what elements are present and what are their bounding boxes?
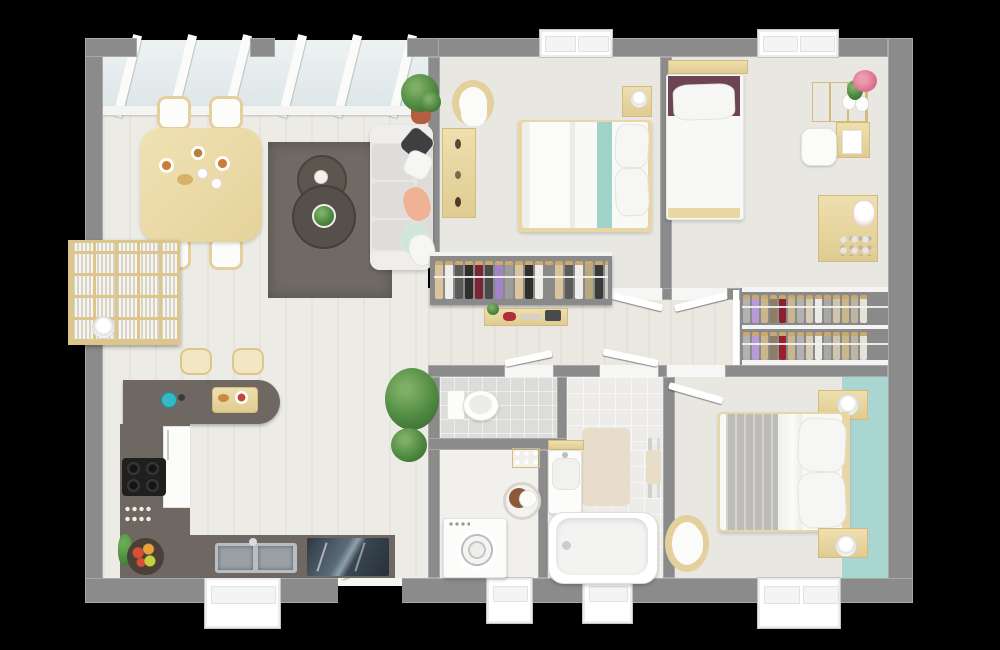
towel (646, 450, 661, 484)
shelf-item (455, 139, 461, 149)
fruit-bowl (127, 538, 164, 575)
washer-controls (448, 521, 470, 527)
closet-shelf-edge (742, 360, 888, 365)
clothing-item (833, 332, 840, 360)
entry-opening (338, 586, 402, 604)
clothing-item (475, 261, 483, 299)
plate (191, 146, 205, 160)
clothing-item (752, 332, 759, 360)
cup (197, 168, 208, 179)
clothing-item (806, 295, 813, 323)
clothing-item (779, 295, 786, 323)
clothing-item (770, 295, 777, 323)
console-bag (545, 310, 561, 321)
kettle (161, 392, 177, 408)
closet-shelf-edge (742, 325, 888, 329)
sink-basin (258, 546, 293, 570)
table-setting (153, 138, 253, 232)
window-bathroom-bottom (583, 578, 632, 623)
clothing-item (545, 261, 553, 299)
clothing-item (505, 261, 513, 299)
clothing-item (555, 261, 563, 299)
burner (146, 462, 159, 475)
faucet (249, 538, 257, 546)
doorway-bathroom (600, 365, 658, 377)
bread-basket (177, 174, 193, 185)
clothing-item (779, 332, 786, 360)
console-shoes (503, 312, 516, 321)
plate (215, 156, 230, 171)
clothing-item (485, 261, 493, 299)
wall-right (888, 38, 913, 603)
bed-bedroom1-pillow (614, 167, 650, 217)
window-pane (589, 586, 628, 602)
window-pane (763, 36, 798, 52)
burner (127, 479, 140, 492)
doorway-bedroom3 (667, 365, 725, 377)
window-pane (764, 586, 800, 604)
large-potted-plant-lower (391, 428, 427, 462)
spice-jars (124, 504, 152, 526)
window-pane (545, 36, 576, 52)
fridge-handle (167, 430, 169, 460)
closet-entry-edge (733, 290, 739, 365)
cup (211, 178, 222, 189)
clothing-item (761, 295, 768, 323)
clothing-item (815, 295, 822, 323)
window-bedroom1-top (540, 30, 612, 57)
wall-hall-bottom (658, 365, 667, 377)
clothing-item (465, 261, 473, 299)
clothing-item (842, 295, 849, 323)
clothing-item (535, 261, 543, 299)
bed-bedroom3-gray-throw (726, 414, 778, 530)
shelf-item (455, 171, 461, 179)
basket-towel-white (519, 490, 537, 508)
clothing-item (495, 261, 503, 299)
clothing-item (788, 332, 795, 360)
dining-chair (157, 96, 191, 130)
clothing-item (806, 332, 813, 360)
shelf-item (455, 197, 461, 207)
clothing-item (851, 332, 858, 360)
wall-top-pier (407, 38, 440, 57)
entry-threshold (338, 578, 402, 586)
clothing-item (824, 332, 831, 360)
desk-chair-bedroom2 (801, 128, 837, 166)
wall-hall-bottom (553, 365, 600, 377)
bathtub-drain (562, 541, 571, 550)
clothing-item (435, 261, 443, 299)
washer-lid (457, 530, 497, 570)
wall-hall-bottom-closet (725, 365, 888, 377)
closet-rail-bar (742, 343, 888, 345)
closet-rail-bottom (742, 331, 888, 361)
potted-plant-leaf (421, 92, 441, 112)
clothing-item (595, 261, 603, 299)
window-bedroom2-top (758, 30, 838, 57)
toy-set (838, 234, 874, 256)
tabletop-plant-bowl (312, 204, 336, 228)
clothing-item (605, 261, 608, 299)
closet-shelf-edge (742, 287, 888, 292)
bath-mat (582, 428, 630, 506)
glass-streak (354, 542, 365, 571)
bed-bedroom1-pillow (614, 123, 650, 169)
window-pane (493, 586, 528, 602)
armchair3-cushion (677, 526, 703, 562)
bar-stool (232, 348, 264, 375)
kettle-lid (178, 394, 185, 401)
glass-streak (316, 542, 327, 571)
wall-lamp (92, 316, 115, 339)
wall-top-pier (250, 38, 275, 57)
bed-bedroom1-teal-runner (597, 122, 612, 228)
clothing-item (743, 295, 750, 323)
wardrobe-rail (434, 276, 608, 278)
glass-hob (307, 538, 389, 576)
clothing-item (788, 295, 795, 323)
dining-chair (209, 96, 243, 130)
clothing-item (797, 295, 804, 323)
clothing-item (575, 261, 583, 299)
burner (127, 462, 140, 475)
closet-rail-top (742, 294, 888, 324)
console-bench (484, 308, 568, 326)
window-kitchen-bottom (205, 578, 280, 628)
plate (159, 158, 174, 173)
wall-hall-bottom (428, 365, 505, 377)
clothing-item (851, 295, 858, 323)
headboard-shelf-bedroom2 (668, 60, 748, 74)
shelf-unit-bedroom1 (442, 128, 476, 218)
clothing-item (761, 332, 768, 360)
clothing-item (770, 332, 777, 360)
console-runner (521, 314, 541, 320)
clothing-item (565, 261, 573, 299)
laundry-wall-shelf (512, 448, 540, 468)
vanity-faucet (562, 452, 568, 458)
board-pastry (218, 394, 229, 402)
bed-bedroom2-footboard (668, 208, 740, 218)
closet-rail-bar (742, 306, 888, 308)
armchair-cushion (461, 96, 487, 126)
bed-bedroom3-pillow (797, 471, 848, 529)
clothing-item (824, 295, 831, 323)
clothing-item (455, 261, 463, 299)
kitchen-sink (215, 543, 297, 573)
cooktop (122, 458, 166, 496)
clothing-item (860, 295, 867, 323)
vanity-top-shelf (548, 440, 584, 450)
clothing-item (515, 261, 523, 299)
clothing-item (743, 332, 750, 360)
doorway-wc (505, 365, 553, 377)
window-pane (578, 36, 609, 52)
lamp-bedroom3-bottom (835, 535, 857, 557)
lamp-bedroom1 (630, 90, 648, 108)
clothing-item (797, 332, 804, 360)
clothing-item (585, 261, 593, 299)
floorplan (85, 38, 913, 603)
toy-bunny (853, 200, 875, 226)
wall-hall-top-stub (662, 288, 672, 300)
wall-top-pier (85, 38, 137, 57)
bed-bedroom2-pillow (672, 83, 735, 121)
toilet-seat (469, 395, 492, 414)
bed-bedroom3-pillow (797, 417, 848, 473)
window-pane (803, 586, 839, 604)
hanging-clothes-bedroom1 (434, 260, 608, 300)
sink-basin (218, 546, 253, 570)
clothing-item (842, 332, 849, 360)
burner (146, 479, 159, 492)
clothing-item (833, 295, 840, 323)
vanity-basin (552, 458, 580, 490)
cube-bookshelf (68, 240, 180, 345)
clothing-item (752, 295, 759, 323)
floorplan-stage (0, 0, 1000, 650)
clothing-item (525, 261, 533, 299)
desk-paper (842, 130, 862, 154)
clothing-item (445, 261, 453, 299)
skylight-fascia (103, 106, 428, 115)
tabletop-cup (314, 170, 328, 184)
board-plate (235, 391, 248, 404)
bar-stool (180, 348, 212, 375)
console-plant (487, 303, 499, 315)
pink-flowers (853, 70, 877, 92)
window-pane (211, 586, 276, 604)
clothing-item (860, 332, 867, 360)
window-pane (800, 36, 835, 52)
wall-laundry-bath (538, 450, 548, 578)
window-laundry-bottom (487, 578, 532, 623)
wardrobe-top-edge (430, 252, 612, 256)
clothing-item (815, 332, 822, 360)
window-bedroom3-bottom (758, 578, 840, 628)
wall-wc-bottom (428, 438, 567, 450)
large-potted-plant (385, 368, 439, 430)
